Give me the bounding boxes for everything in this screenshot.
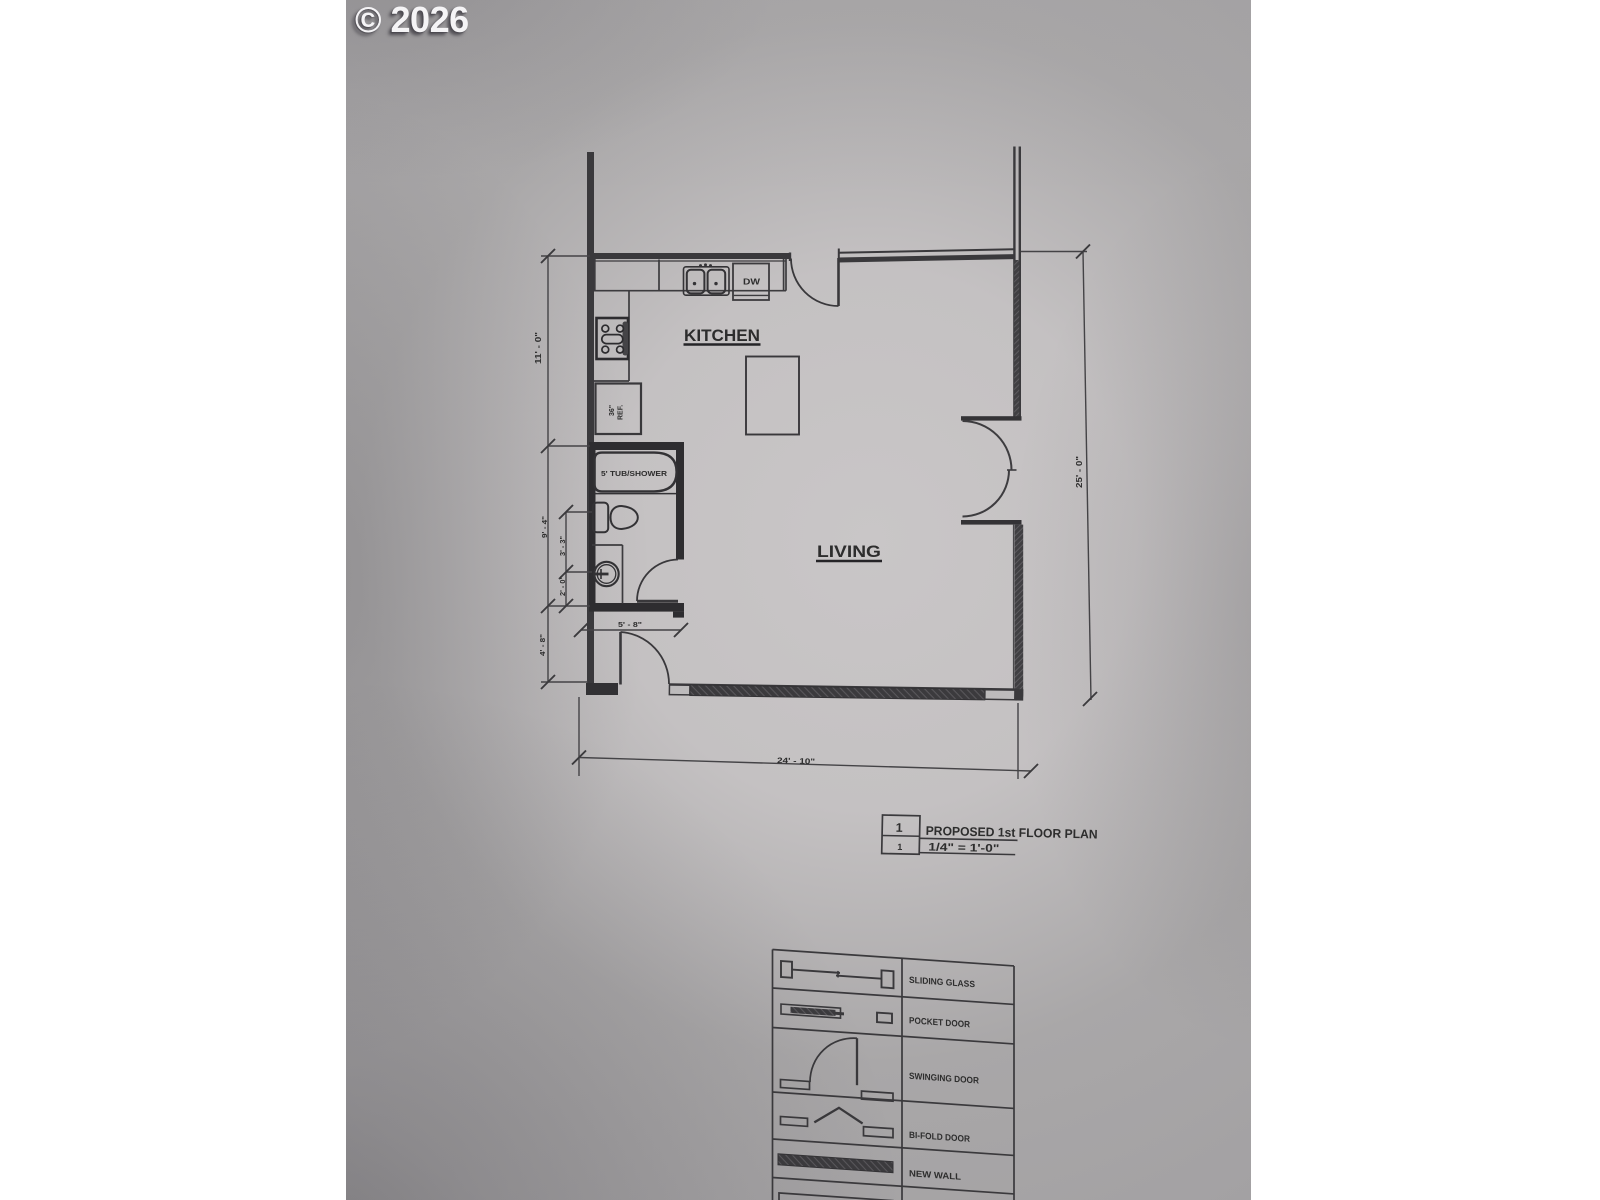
svg-text:9' - 4": 9' - 4" bbox=[540, 516, 549, 538]
svg-text:4' - 8": 4' - 8" bbox=[538, 634, 547, 656]
svg-text:3' - 3": 3' - 3" bbox=[558, 536, 567, 556]
svg-text:5' - 8": 5' - 8" bbox=[618, 620, 642, 629]
svg-text:1: 1 bbox=[896, 821, 903, 835]
svg-text:SLIDING GLASS: SLIDING GLASS bbox=[909, 975, 975, 989]
svg-text:24' - 10": 24' - 10" bbox=[777, 756, 815, 766]
svg-text:36"REF.: 36"REF. bbox=[609, 405, 625, 420]
svg-text:25' - 0": 25' - 0" bbox=[1075, 456, 1084, 488]
svg-text:11' - 0": 11' - 0" bbox=[534, 332, 543, 364]
svg-text:LIVING: LIVING bbox=[817, 543, 881, 561]
svg-text:POCKET DOOR: POCKET DOOR bbox=[909, 1015, 970, 1029]
svg-text:DW: DW bbox=[743, 278, 761, 287]
svg-text:2' - 0": 2' - 0" bbox=[558, 576, 567, 596]
svg-text:1: 1 bbox=[897, 842, 902, 852]
svg-text:1/4" = 1'-0": 1/4" = 1'-0" bbox=[928, 841, 999, 854]
svg-text:BI-FOLD DOOR: BI-FOLD DOOR bbox=[909, 1130, 970, 1144]
svg-text:NEW WALL: NEW WALL bbox=[909, 1168, 962, 1182]
svg-text:5' TUB/SHOWER: 5' TUB/SHOWER bbox=[601, 469, 668, 478]
svg-text:SWINGING DOOR: SWINGING DOOR bbox=[909, 1071, 979, 1086]
svg-text:KITCHEN: KITCHEN bbox=[684, 327, 760, 345]
